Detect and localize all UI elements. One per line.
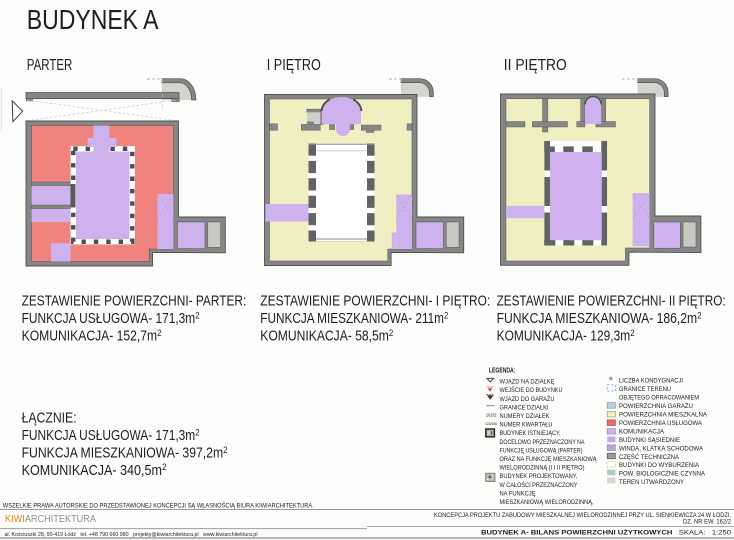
- svg-text:ZESTAWIENIE POWIERZCHNI- PARTE: ZESTAWIENIE POWIERZCHNI- PARTER:: [22, 294, 247, 310]
- svg-text:KOMUNIKACJA- 58,5m2: KOMUNIKACJA- 58,5m2: [260, 328, 393, 345]
- svg-text:WIELORODZINNĄ (I I II PIĘTRO): WIELORODZINNĄ (I I II PIĘTRO): [500, 465, 585, 472]
- svg-text:BUDYNKI SĄSIEDNIE: BUDYNKI SĄSIEDNIE: [619, 437, 681, 444]
- svg-text:BUDYNEK A- BILANS POWIERZCHNI: BUDYNEK A- BILANS POWIERZCHNI UŻYTKOWYCH…: [481, 529, 732, 537]
- svg-text:WSZELKIE PRAWA AUTORSKIE DO PR: WSZELKIE PRAWA AUTORSKIE DO PRZEDSTAWION…: [3, 501, 314, 510]
- svg-text:GRANICE TERENU: GRANICE TERENU: [619, 386, 671, 393]
- svg-text:DZ. NR EW. 162/2: DZ. NR EW. 162/2: [683, 519, 731, 526]
- svg-text:LICZBA KONDYGNACJI: LICZBA KONDYGNACJI: [619, 378, 683, 385]
- svg-text:BUDYNEK A: BUDYNEK A: [27, 4, 159, 35]
- svg-text:FUNKCJA MIESZKANIOWA- 397,2m2: FUNKCJA MIESZKANIOWA- 397,2m2: [22, 445, 228, 462]
- svg-text:I PIĘTRO: I PIĘTRO: [267, 57, 321, 74]
- svg-text:BUDYNEK ISTNIEJĄCY,: BUDYNEK ISTNIEJĄCY,: [500, 430, 561, 437]
- svg-text:WINDA, KLATKA SCHODOWA: WINDA, KLATKA SCHODOWA: [619, 445, 704, 452]
- svg-text:KOMUNIKACJA- 152,7m2: KOMUNIKACJA- 152,7m2: [22, 328, 162, 345]
- svg-text:FUNKCJA MIESZKANIOWA- 211m2: FUNKCJA MIESZKANIOWA- 211m2: [260, 310, 448, 327]
- svg-text:KIWIARCHITEKTURA: KIWIARCHITEKTURA: [5, 514, 96, 525]
- svg-text:ZESTAWIENIE POWIERZCHNI- II PI: ZESTAWIENIE POWIERZCHNI- II PIĘTRO:: [497, 294, 726, 310]
- svg-text:CZĘŚĆ TECHNICZNA: CZĘŚĆ TECHNICZNA: [619, 452, 680, 461]
- svg-text:al. Kościuszki 28, 90-419 Łódź: al. Kościuszki 28, 90-419 Łódź tel. +48 …: [5, 532, 258, 538]
- svg-text:FUNKCJA MIESZKANIOWA- 186,2m2: FUNKCJA MIESZKANIOWA- 186,2m2: [497, 310, 702, 327]
- svg-text:TEREN UTWARDZONY: TEREN UTWARDZONY: [619, 479, 685, 486]
- svg-text:FUNKCJA USŁUGOWA- 171,3m2: FUNKCJA USŁUGOWA- 171,3m2: [22, 310, 200, 327]
- svg-text:POW. BIOLOGICZNIE CZYNNA: POW. BIOLOGICZNIE CZYNNA: [619, 471, 706, 478]
- svg-text:PARTER: PARTER: [27, 57, 73, 74]
- svg-text:DOCELOWO PRZEZNACZONY NA: DOCELOWO PRZEZNACZONY NA: [500, 439, 585, 446]
- svg-text:BUDYNEK PROJEKTOWANY,: BUDYNEK PROJEKTOWANY,: [500, 473, 578, 480]
- svg-text:ŁĄCZNIE:: ŁĄCZNIE:: [22, 411, 77, 427]
- svg-text:123/456: 123/456: [485, 422, 497, 426]
- svg-text:POWIERZCHNIA USŁUGOWA: POWIERZCHNIA USŁUGOWA: [619, 420, 703, 427]
- svg-text:FUNKCJA USŁUGOWA- 171,3m2: FUNKCJA USŁUGOWA- 171,3m2: [22, 427, 200, 444]
- svg-text:OBJĘTEGO OPRACOWANIEM: OBJĘTEGO OPRACOWANIEM: [619, 395, 699, 402]
- svg-text:WEJŚCIE DO BUDYNKU: WEJŚCIE DO BUDYNKU: [500, 385, 563, 394]
- svg-text:POWIERZCHNIA GARAŻU: POWIERZCHNIA GARAŻU: [619, 401, 693, 410]
- svg-text:162/2: 162/2: [486, 412, 497, 417]
- svg-text:KOMUNIKACJA- 129,3m2: KOMUNIKACJA- 129,3m2: [497, 328, 635, 345]
- svg-text:NUMER KWARTAŁU: NUMER KWARTAŁU: [500, 422, 553, 429]
- svg-text:GRANICE DZIAŁKI: GRANICE DZIAŁKI: [500, 404, 549, 411]
- svg-text:MIESZKANIOWĄ WIELORODZINNĄ,: MIESZKANIOWĄ WIELORODZINNĄ,: [500, 499, 594, 506]
- svg-text:POWIERZCHNIA MIESZKALNA: POWIERZCHNIA MIESZKALNA: [619, 412, 708, 419]
- svg-text:NA FUNKCJĘ: NA FUNKCJĘ: [500, 490, 537, 497]
- svg-text:ZESTAWIENIE POWIERZCHNI- I PIĘ: ZESTAWIENIE POWIERZCHNI- I PIĘTRO:: [260, 294, 490, 310]
- svg-text:KOMUNIKACJA: KOMUNIKACJA: [619, 428, 665, 435]
- svg-text:FUNKCJĘ USŁUGOWĄ (PARTER): FUNKCJĘ USŁUGOWĄ (PARTER): [500, 447, 583, 454]
- svg-text:LEGENDA:: LEGENDA:: [489, 368, 516, 375]
- svg-text:II PIĘTRO: II PIĘTRO: [504, 57, 567, 74]
- svg-text:KOMUNIKACJA- 340,5m2: KOMUNIKACJA- 340,5m2: [22, 462, 167, 479]
- svg-text:ORAZ NA FUNKCJĘ MIESZKANIOWĄ: ORAZ NA FUNKCJĘ MIESZKANIOWĄ: [500, 456, 598, 463]
- svg-text:WJAZD NA DZIAŁKĘ: WJAZD NA DZIAŁKĘ: [500, 379, 556, 386]
- svg-text:BUDYNKI DO WYBURZENIA: BUDYNKI DO WYBURZENIA: [619, 462, 700, 469]
- svg-text:W CAŁOŚCI PRZEZNACZONY: W CAŁOŚCI PRZEZNACZONY: [500, 480, 579, 489]
- svg-text:WJAZD DO GARAŻU: WJAZD DO GARAŻU: [500, 394, 555, 403]
- svg-text:NUMERY DZIAŁEK: NUMERY DZIAŁEK: [500, 413, 551, 420]
